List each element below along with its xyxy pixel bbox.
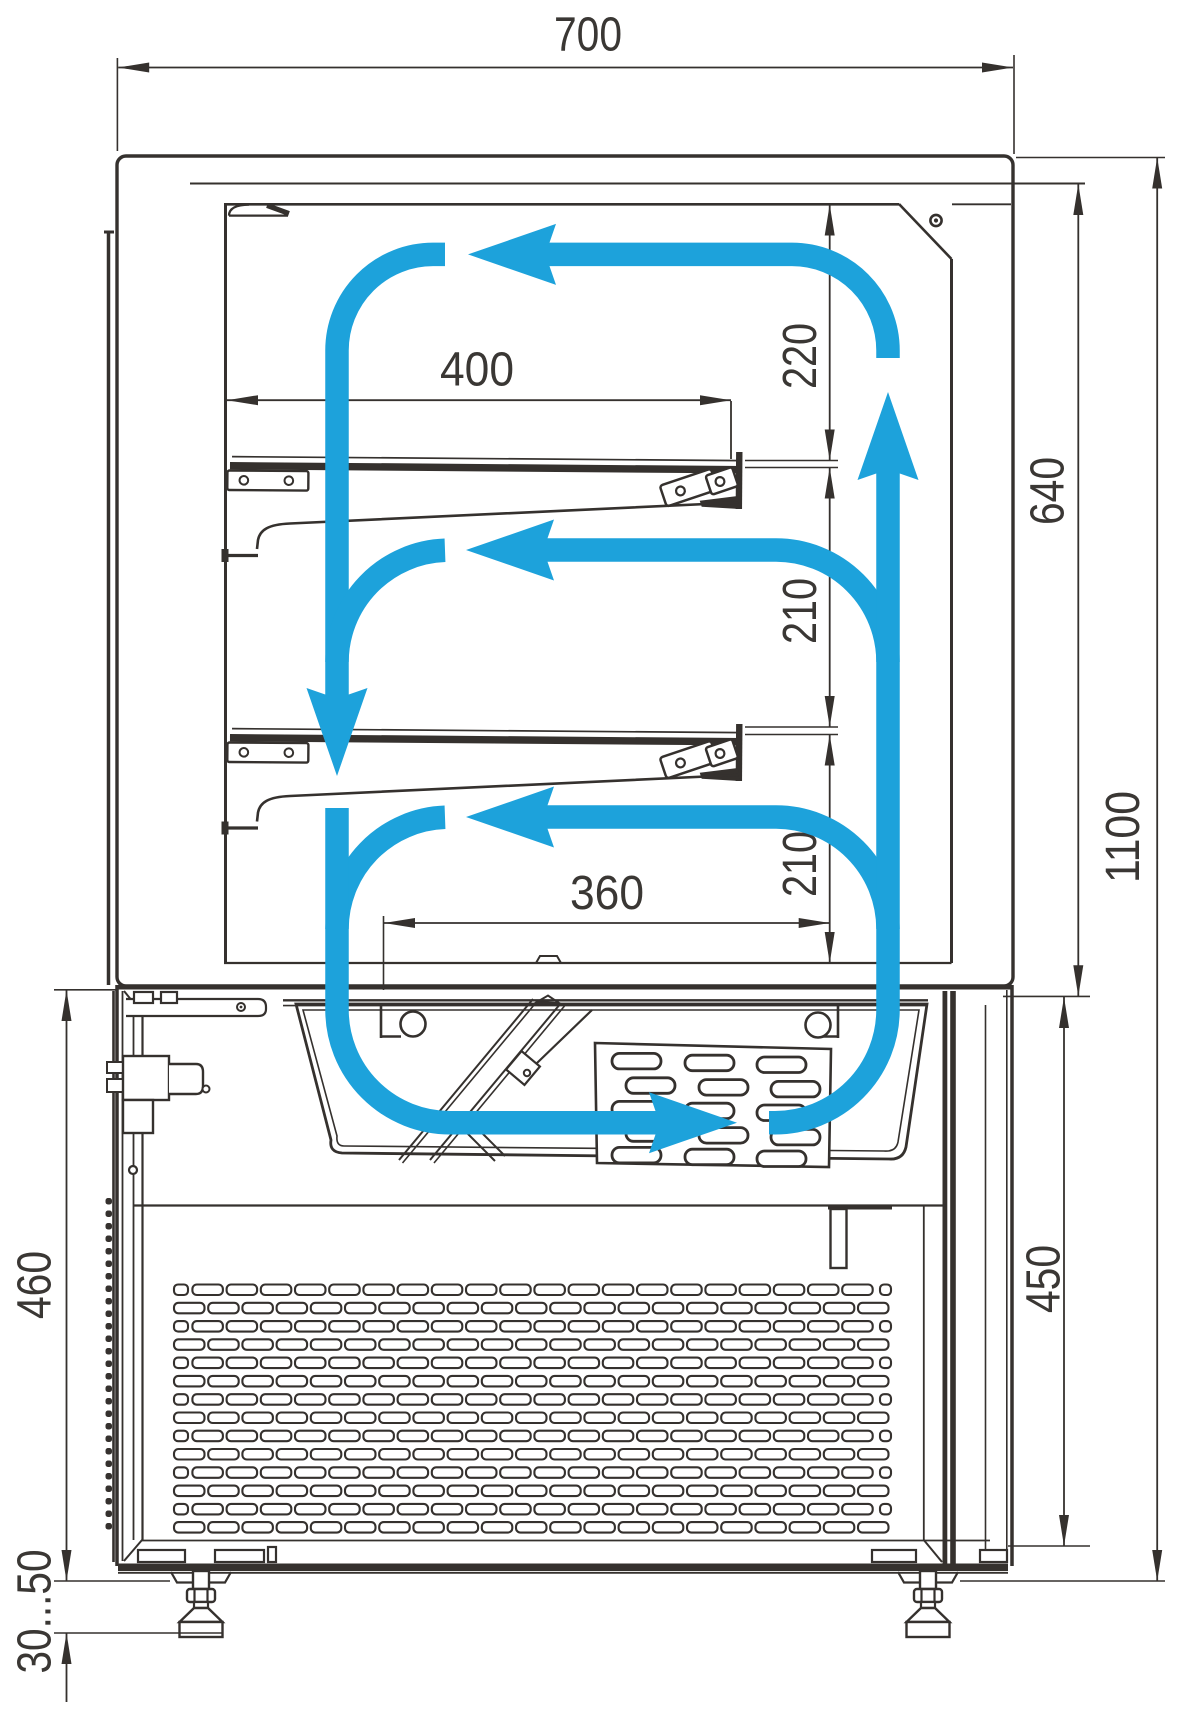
svg-text:400: 400 — [440, 343, 514, 397]
svg-text:450: 450 — [1017, 1245, 1071, 1313]
svg-text:460: 460 — [8, 1251, 62, 1319]
svg-text:700: 700 — [554, 8, 622, 62]
svg-text:360: 360 — [570, 866, 644, 920]
svg-text:220: 220 — [773, 323, 827, 389]
svg-text:210: 210 — [773, 578, 827, 644]
svg-text:1100: 1100 — [1096, 791, 1150, 883]
svg-text:640: 640 — [1021, 457, 1075, 525]
svg-text:30...50: 30...50 — [8, 1550, 62, 1674]
svg-text:210: 210 — [773, 831, 827, 897]
